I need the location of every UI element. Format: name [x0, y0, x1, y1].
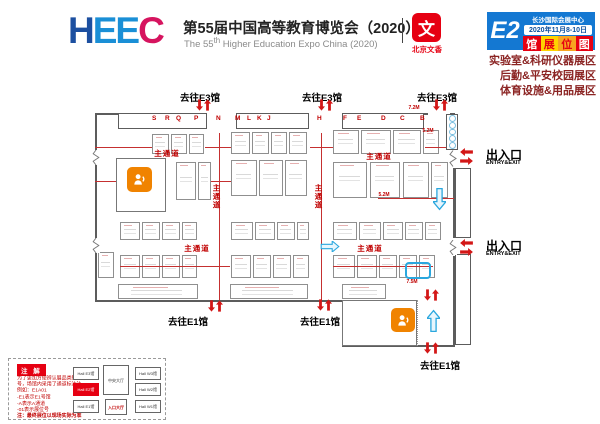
- direction-arrow: [424, 288, 439, 302]
- expo-floorplan-page: HEEC 第55届中国高等教育博览会（2020） The 55th Higher…: [0, 0, 600, 424]
- booth: [403, 162, 429, 198]
- booth: [271, 132, 287, 154]
- venue-minimap: Hall E3馆Hall E2馆Hall E1馆中央大厅入口大厅Hall W3馆…: [71, 363, 165, 417]
- booth: [333, 130, 359, 154]
- direction-arrow: [427, 303, 440, 339]
- booth: [342, 284, 386, 299]
- to-e1-label: 去往E1馆: [417, 358, 463, 372]
- aisle-letter: S: [152, 115, 156, 122]
- minimap-hall-label: Hall E1馆: [78, 404, 95, 410]
- booth: [231, 222, 253, 240]
- booth: [273, 255, 291, 278]
- aisle-line: [211, 181, 231, 182]
- booth: [297, 222, 309, 240]
- booth: [277, 222, 295, 240]
- aisle-line: [95, 147, 152, 148]
- minimap-hall: Hall W3馆: [135, 367, 161, 380]
- speaker-icon: [127, 167, 152, 192]
- booth: [176, 162, 196, 200]
- wall-segment: [95, 252, 97, 302]
- booth: [120, 222, 140, 240]
- booth: [383, 222, 403, 240]
- aisle-letter: P: [194, 115, 198, 122]
- minimap-hall-label: Hall W3馆: [139, 371, 157, 377]
- booth: [118, 284, 198, 299]
- direction-arrow: [196, 98, 211, 112]
- minimap-hall: Hall W2馆: [135, 383, 161, 396]
- aisle-line: [120, 266, 230, 267]
- booth: [231, 132, 250, 154]
- dimension-label: 7.2M: [406, 105, 422, 111]
- round-table-icon: [449, 135, 456, 142]
- aisle-letter: K: [257, 115, 262, 122]
- main-aisle-label: 主通道: [314, 184, 324, 210]
- door-notch: [449, 150, 457, 167]
- direction-arrow: [208, 299, 223, 313]
- aisle-letter: H: [317, 115, 322, 122]
- legend-box: 注 解 为了更加方便辨认展品类别和编号，场馆内采用了通道标注法。例如：E1A01…: [8, 358, 166, 420]
- main-aisle-label: 主通道: [180, 243, 214, 254]
- booth: [198, 162, 211, 200]
- direction-arrow: [314, 241, 346, 252]
- booth: [405, 222, 423, 240]
- direction-arrow: [424, 341, 439, 355]
- minimap-hall: 中央大厅: [103, 365, 129, 395]
- aisle-line: [205, 147, 231, 148]
- booth: [333, 162, 367, 198]
- aisle-letter: J: [267, 115, 271, 122]
- direction-arrow: [433, 183, 446, 215]
- to-e1-label: 去往E1馆: [165, 314, 211, 328]
- direction-arrow: [318, 98, 333, 112]
- door-notch: [92, 150, 100, 165]
- booth: [231, 160, 257, 196]
- booth: [231, 255, 251, 278]
- speaker-icon: [391, 308, 415, 332]
- aisle-letter: L: [247, 115, 251, 122]
- booth: [255, 222, 275, 240]
- booth: [293, 255, 309, 278]
- minimap-hall-label: 入口大厅: [108, 404, 124, 410]
- room-dotted-edge: [417, 300, 419, 346]
- entry-exit-en: ENTRY&EXIT: [486, 251, 546, 257]
- minimap-hall-label: Hall E3馆: [78, 371, 95, 377]
- link-corridor: [455, 168, 471, 238]
- booth: [230, 284, 308, 299]
- round-table-icon: [449, 115, 456, 122]
- round-table-strip: [446, 114, 458, 150]
- booth: [425, 222, 441, 240]
- booth: [98, 252, 114, 278]
- dimension-label: 5.2M: [376, 192, 392, 198]
- wall-segment: [95, 113, 120, 115]
- booth: [259, 160, 283, 196]
- door-notch: [449, 240, 457, 255]
- direction-arrow: [459, 148, 474, 165]
- booth: [182, 222, 197, 240]
- booth: [252, 132, 269, 154]
- aisle-line: [95, 181, 118, 182]
- direction-arrow: [317, 298, 332, 312]
- highlighted-booth: [405, 262, 431, 279]
- aisle-letter: N: [216, 115, 221, 122]
- booth: [189, 134, 204, 154]
- main-aisle-label: 主通道: [212, 184, 222, 210]
- aisle-letter: E: [357, 115, 361, 122]
- booth: [393, 130, 421, 154]
- booth: [285, 160, 307, 196]
- booth: [359, 222, 381, 240]
- round-table-icon: [449, 129, 456, 136]
- wall-segment: [95, 113, 97, 150]
- booth: [333, 222, 357, 240]
- minimap-hall: Hall W1馆: [135, 400, 161, 413]
- aisle-line: [219, 133, 220, 300]
- booth: [142, 222, 160, 240]
- aisle-letter: Q: [176, 115, 181, 122]
- dimension-label: 5.2M: [420, 128, 436, 134]
- minimap-hall-label: Hall W1馆: [139, 404, 157, 410]
- entry-exit-en: ENTRY&EXIT: [486, 160, 546, 166]
- legend-note-line: 注：最终展位以现场实际为准: [17, 413, 73, 419]
- minimap-hall-label: 中央大厅: [108, 377, 124, 383]
- direction-arrow: [433, 98, 448, 112]
- dimension-label: 7.5M: [404, 279, 420, 285]
- aisle-letter: C: [400, 115, 405, 122]
- minimap-hall: Hall E2馆: [73, 383, 99, 396]
- aisle-letter: M: [235, 115, 240, 122]
- booth: [162, 222, 180, 240]
- aisle-letter: B: [420, 115, 425, 122]
- aisle-letter: D: [381, 115, 386, 122]
- legend-notes: 为了更加方便辨认展品类别和编号，场馆内采用了通道标注法。例如：E1A01-E1表…: [17, 375, 73, 419]
- minimap-hall: 入口大厅: [105, 399, 127, 415]
- aisle-line: [321, 133, 322, 300]
- minimap-hall-label: Hall E2馆: [78, 387, 95, 393]
- door-notch: [92, 238, 100, 253]
- booth: [253, 255, 271, 278]
- minimap-hall: Hall E3馆: [73, 367, 99, 380]
- main-aisle-label: 主通道: [353, 243, 387, 254]
- aisle-line: [310, 147, 333, 148]
- aisle-letter: F: [343, 115, 347, 122]
- main-aisle-label: 主通道: [362, 151, 396, 162]
- aisle-letter: R: [165, 115, 170, 122]
- direction-arrow: [459, 239, 474, 256]
- wall-segment: [95, 164, 97, 238]
- to-e1-label: 去往E1馆: [297, 314, 343, 328]
- booth: [289, 132, 307, 154]
- link-corridor: [455, 254, 471, 345]
- minimap-hall: Hall E1馆: [73, 400, 99, 413]
- minimap-hall-label: Hall W2馆: [139, 387, 157, 393]
- round-table-icon: [449, 142, 456, 149]
- round-table-icon: [449, 122, 456, 129]
